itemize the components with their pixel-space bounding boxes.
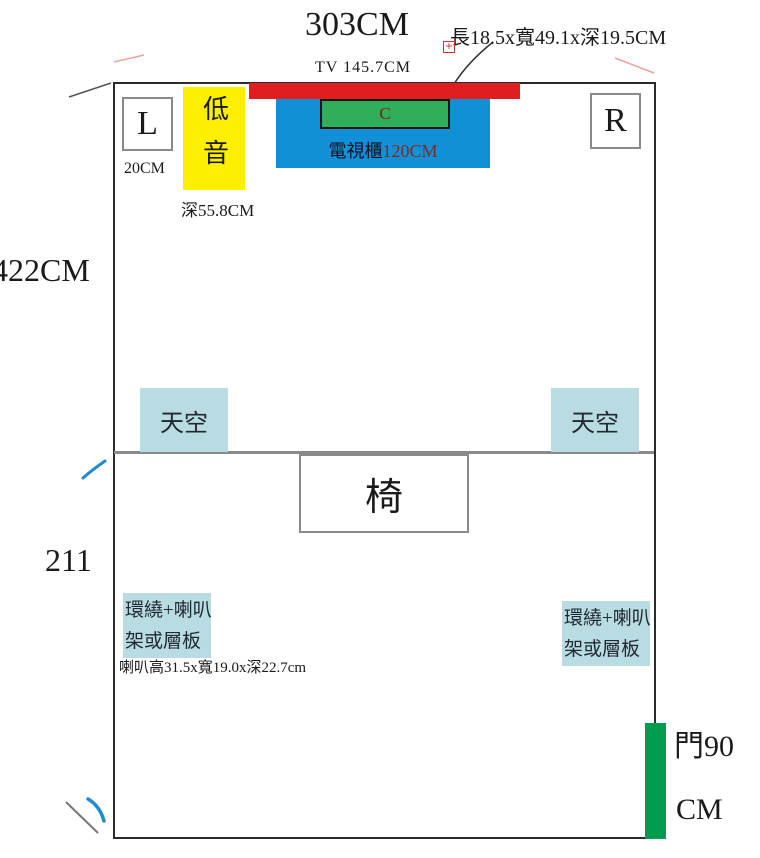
- tv-cabinet-name: 電視櫃: [328, 141, 382, 161]
- room-length-front-label: 422CM: [0, 252, 90, 289]
- corner-mark-top-left-pink: [114, 55, 144, 62]
- subwoofer-depth-label: 深55.8CM: [181, 196, 254, 221]
- door-width-label-line2: CM: [676, 793, 723, 827]
- surround-speaker-left: 環繞+喇叭 架或層板: [123, 593, 211, 658]
- surround-left-line2: 架或層板: [125, 626, 211, 657]
- anchor-icon: +: [443, 41, 455, 53]
- mid-left-blue-mark: [83, 461, 105, 478]
- center-speaker-dimensions-label: 長18.5x寬49.1x深19.5CM: [450, 21, 666, 50]
- room-length-rear-label: 211: [45, 542, 92, 579]
- door: [645, 723, 666, 839]
- bottom-left-blue-mark: [88, 799, 104, 821]
- ceiling-speaker-right-label: 天空: [571, 403, 619, 438]
- tv-width-label: TV 145.7CM: [315, 59, 411, 77]
- surround-left-line1: 環繞+喇叭: [125, 595, 211, 626]
- surround-speaker-dimensions-label: 喇叭高31.5x寬19.0x深22.7cm: [119, 656, 306, 677]
- front-right-speaker: R: [590, 93, 641, 149]
- room-layout-diagram: 303CM 長18.5x寬49.1x深19.5CM + TV 145.7CM C…: [0, 0, 760, 858]
- surround-right-line1: 環繞+喇叭: [564, 603, 650, 634]
- subwoofer: 低音: [183, 87, 245, 190]
- door-width-label-line1: 門90: [674, 721, 734, 765]
- ceiling-speaker-right: 天空: [551, 388, 639, 452]
- room-width-label: 303CM: [305, 6, 409, 44]
- tv-cabinet-label: 電視櫃120CM: [276, 137, 490, 163]
- corner-mark-top-left-dark: [69, 83, 111, 97]
- center-speaker-label: C: [379, 104, 390, 124]
- subwoofer-label: 低音: [196, 95, 233, 183]
- chair: 椅: [299, 454, 469, 533]
- tv-bar: [249, 83, 520, 99]
- front-right-speaker-label: R: [604, 102, 627, 140]
- front-left-speaker: L: [122, 97, 173, 151]
- front-left-speaker-label: L: [137, 105, 158, 143]
- ceiling-speaker-left: 天空: [140, 388, 228, 452]
- surround-right-line2: 架或層板: [564, 634, 650, 665]
- corner-mark-top-right-pink: [615, 58, 654, 73]
- bottom-left-gray-mark: [66, 802, 98, 833]
- tv-cabinet-size: 120CM: [382, 141, 437, 161]
- surround-speaker-right: 環繞+喇叭 架或層板: [562, 601, 650, 666]
- ceiling-speaker-left-label: 天空: [160, 403, 208, 438]
- front-wall-gap-label: 20CM: [124, 160, 165, 178]
- center-speaker: C: [320, 99, 450, 129]
- chair-label: 椅: [365, 466, 403, 521]
